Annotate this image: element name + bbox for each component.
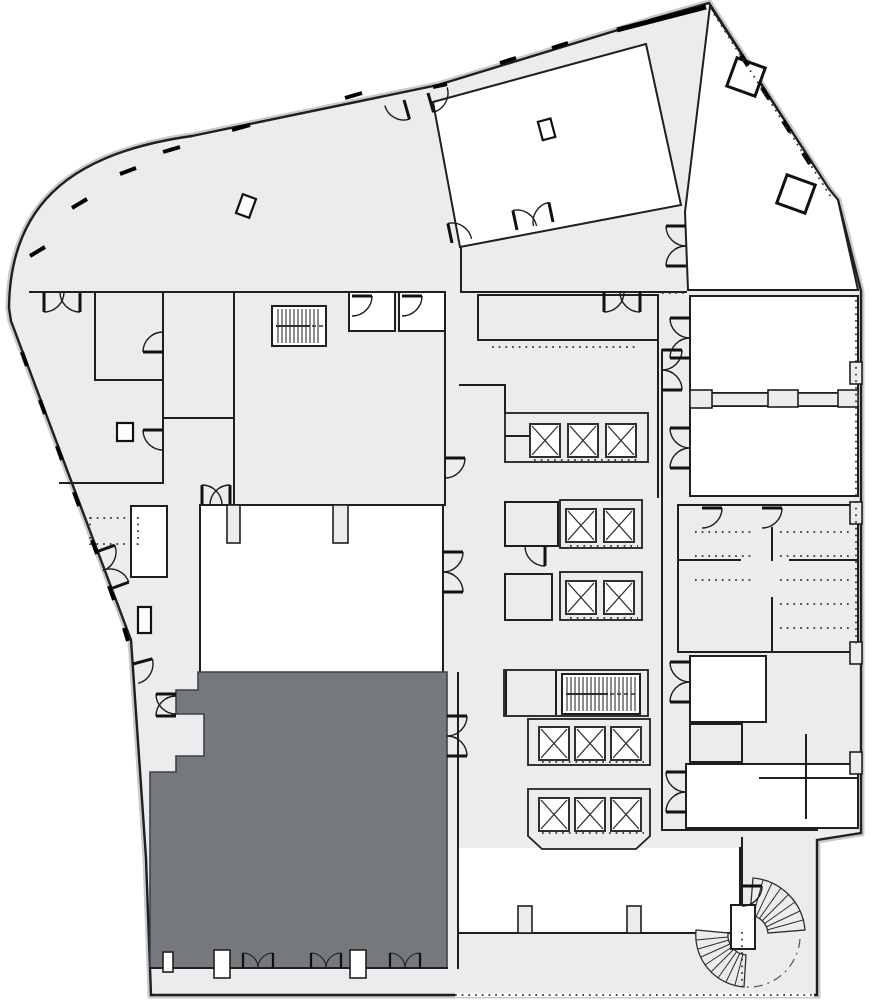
elevator-bank-5 [539, 798, 641, 831]
stairwell-a [272, 306, 326, 346]
left-small-room [131, 506, 167, 577]
column-left-2 [138, 607, 151, 633]
upper-right-room [685, 6, 858, 290]
elevator-bank-4 [539, 727, 641, 760]
meeting-room-divider [690, 390, 858, 408]
column-left-1 [117, 423, 133, 441]
elevator-bank-1 [530, 424, 636, 457]
lobby [458, 848, 740, 933]
coat-room [690, 656, 766, 722]
meeting-room-a [690, 296, 858, 393]
floor-plan [0, 0, 870, 1004]
floor-plan-page [0, 0, 870, 1004]
stairwell-b [562, 674, 640, 714]
right-bottom-room [686, 764, 858, 828]
meeting-room-b [690, 406, 858, 496]
